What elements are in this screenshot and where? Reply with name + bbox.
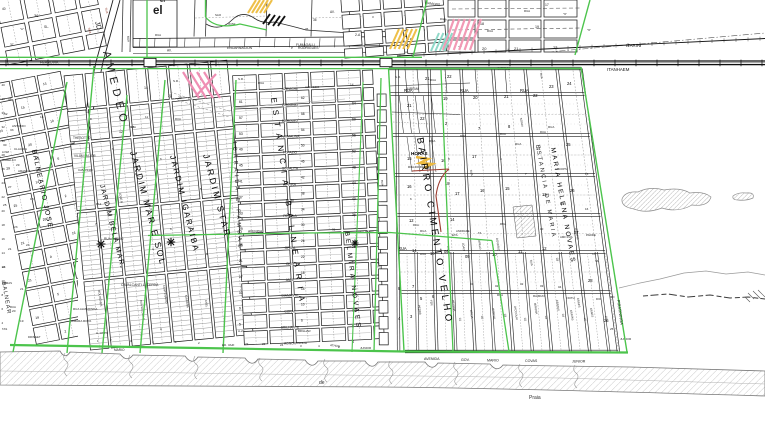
svg-text:CABELLO: CABELLO [2, 158, 17, 162]
svg-text:20: 20 [2, 209, 6, 213]
svg-text:34: 34 [301, 207, 305, 211]
svg-text:20: 20 [178, 96, 182, 100]
svg-text:19: 19 [535, 25, 539, 29]
svg-text:P12: P12 [96, 202, 102, 206]
svg-text:26: 26 [301, 239, 305, 243]
svg-text:04: 04 [558, 285, 562, 289]
svg-text:RUA: RUA [500, 222, 506, 226]
svg-text:ARANGA: ARANGA [18, 169, 31, 173]
svg-text:RUA: RUA [380, 180, 385, 186]
svg-text:RUA: RUA [130, 125, 136, 129]
svg-text:22: 22 [420, 116, 425, 121]
svg-text:AZEVEDO: AZEVEDO [305, 85, 320, 89]
svg-text:RUA: RUA [548, 125, 554, 129]
svg-text:ETA: ETA [452, 233, 458, 237]
svg-text:DO: DO [610, 295, 615, 299]
svg-text:36: 36 [313, 18, 317, 22]
svg-text:ZIRCONIO: ZIRCONIO [282, 103, 299, 107]
svg-text:RUA: RUA [430, 78, 436, 82]
svg-text:TA: TA [478, 231, 482, 235]
svg-text:RUA: RUA [540, 130, 546, 134]
svg-text:24: 24 [26, 243, 30, 247]
svg-text:RUA: RUA [413, 223, 419, 227]
svg-text:COVAS: COVAS [525, 359, 538, 363]
svg-text:RUA: RUA [126, 36, 131, 43]
svg-text:ANDRADE: ANDRADE [456, 229, 470, 233]
svg-text:50: 50 [301, 144, 305, 148]
svg-text:16: 16 [40, 115, 44, 119]
svg-text:2-A: 2-A [355, 33, 361, 37]
svg-text:36: 36 [2, 97, 6, 101]
svg-text:22: 22 [2, 195, 6, 199]
svg-text:RUA: RUA [420, 229, 426, 233]
svg-text:6: 6 [301, 319, 303, 323]
svg-text:40: 40 [2, 7, 6, 11]
svg-text:RUA: RUA [440, 17, 446, 21]
svg-text:SAO: SAO [215, 13, 222, 17]
svg-text:P: P [291, 46, 293, 50]
svg-text:14: 14 [450, 217, 455, 222]
svg-text:AGNOR: AGNOR [296, 341, 308, 345]
svg-text:60: 60 [352, 118, 356, 122]
svg-text:15: 15 [407, 156, 412, 161]
svg-text:el: el [160, 0, 165, 4]
svg-text:49: 49 [239, 148, 243, 152]
svg-text:17: 17 [472, 154, 477, 159]
svg-text:58: 58 [301, 112, 305, 116]
svg-text:09: 09 [465, 254, 470, 259]
svg-text:38: 38 [301, 191, 305, 195]
svg-text:21: 21 [239, 259, 243, 263]
svg-text:16: 16 [585, 207, 589, 211]
svg-text:13: 13 [239, 291, 243, 295]
svg-text:28: 28 [588, 278, 593, 283]
svg-text:AGNOR: AGNOR [284, 341, 297, 345]
svg-text:RUA: RUA [515, 142, 521, 146]
svg-text:A. OTTO: A. OTTO [96, 331, 109, 335]
svg-text:FIOTH: FIOTH [566, 296, 575, 300]
svg-text:23: 23 [245, 342, 249, 346]
svg-text:CAMPINIO: CAMPINIO [78, 168, 94, 172]
svg-text:FUMAGALLI: FUMAGALLI [296, 43, 315, 47]
svg-text:LOWI: LOWI [2, 150, 9, 154]
svg-text:DRINGET: DRINGET [28, 335, 41, 339]
svg-text:15: 15 [505, 186, 510, 191]
svg-text:S.R.: S.R. [238, 77, 244, 81]
svg-text:ITARIRI: ITARIRI [626, 43, 641, 48]
svg-text:21: 21 [504, 94, 509, 99]
svg-text:MARIO: MARIO [114, 348, 125, 352]
svg-text:30: 30 [3, 143, 7, 147]
svg-text:30: 30 [301, 223, 305, 227]
svg-text:24: 24 [567, 81, 572, 86]
svg-text:17: 17 [455, 191, 460, 196]
svg-text:ALMARA ROYA: ALMARA ROYA [70, 319, 91, 323]
svg-text:24: 24 [280, 343, 284, 347]
svg-text:DIO: DIO [596, 297, 602, 301]
svg-text:RUA: RUA [429, 139, 435, 143]
svg-text:SL.: SL. [44, 25, 49, 29]
svg-text:34: 34 [2, 111, 6, 115]
svg-text:11: 11 [518, 249, 523, 254]
svg-text:THESOTTO: THESOTTO [73, 136, 91, 140]
svg-text:RUA: RUA [460, 134, 466, 138]
svg-text:21: 21 [8, 247, 12, 251]
svg-text:el: el [153, 5, 163, 17]
svg-text:21: 21 [425, 76, 430, 81]
svg-text:TER: TER [429, 300, 434, 306]
svg-text:03: 03 [540, 284, 544, 288]
svg-text:ED. VAZI: ED. VAZI [222, 343, 234, 347]
svg-text:MARQUEZ: MARQUEZ [282, 119, 299, 123]
svg-text:23: 23 [14, 225, 18, 229]
svg-text:"9": "9" [587, 28, 591, 32]
svg-text:40: 40 [352, 197, 356, 201]
svg-text:TAS: TAS [2, 327, 7, 331]
svg-text:48: 48 [352, 165, 356, 169]
svg-text:61: 61 [239, 100, 243, 104]
svg-text:15: 15 [585, 172, 589, 176]
svg-text:27: 27 [8, 185, 12, 189]
svg-text:9: 9 [239, 307, 241, 311]
svg-text:18: 18 [30, 197, 34, 201]
svg-text:RUA: RUA [524, 9, 530, 13]
svg-text:57: 57 [239, 116, 243, 120]
svg-text:20: 20 [482, 46, 487, 51]
svg-text:CORAL: CORAL [284, 310, 296, 314]
svg-text:14: 14 [2, 251, 6, 255]
svg-text:12: 12 [2, 265, 6, 269]
svg-text:26: 26 [570, 188, 575, 193]
svg-text:5: 5 [239, 323, 241, 327]
svg-text:44: 44 [352, 181, 356, 185]
svg-text:20: 20 [12, 309, 16, 313]
svg-text:29: 29 [16, 163, 20, 167]
svg-text:19: 19 [443, 96, 448, 101]
svg-text:22: 22 [533, 93, 538, 98]
svg-text:40: 40 [2, 83, 6, 87]
svg-text:22: 22 [447, 74, 452, 79]
svg-text:11: 11 [145, 115, 148, 119]
svg-text:36: 36 [352, 213, 356, 217]
svg-text:21: 21 [20, 287, 24, 291]
svg-text:02: 02 [520, 282, 524, 286]
svg-text:10: 10 [540, 227, 544, 231]
svg-text:14: 14 [412, 248, 417, 253]
svg-text:RUA: RUA [487, 29, 493, 33]
svg-text:"A": "A" [20, 27, 24, 31]
svg-text:25: 25 [566, 142, 571, 147]
svg-text:12: 12 [119, 130, 123, 134]
svg-text:RUA: RUA [258, 81, 264, 85]
svg-text:RUA: RUA [420, 252, 426, 256]
svg-text:37: 37 [10, 43, 14, 47]
svg-text:32: 32 [2, 125, 6, 129]
svg-text:23: 23 [549, 84, 554, 89]
svg-text:Praia: Praia [529, 395, 541, 401]
svg-text:36: 36 [305, 27, 309, 31]
svg-text:20: 20 [473, 95, 478, 100]
svg-text:AV.: AV. [167, 49, 172, 53]
svg-text:36: 36 [34, 13, 39, 18]
svg-text:21: 21 [407, 103, 412, 108]
svg-text:33: 33 [10, 128, 14, 132]
svg-text:AV.: AV. [330, 10, 335, 14]
svg-text:30: 30 [2, 139, 6, 143]
svg-text:14: 14 [350, 83, 354, 87]
svg-text:RUA: RUA [155, 33, 161, 37]
svg-text:25: 25 [3, 203, 7, 207]
svg-text:A-22: A-22 [238, 329, 245, 333]
svg-text:de: de [319, 380, 325, 386]
svg-text:AVENIDA: AVENIDA [424, 357, 440, 361]
svg-text:12: 12 [542, 246, 547, 251]
svg-text:JADE: JADE [286, 278, 295, 282]
svg-text:42: 42 [301, 176, 305, 180]
svg-text:BRILHAR: BRILHAR [298, 329, 311, 333]
svg-text:RUA: RUA [398, 246, 407, 251]
svg-text:ENCARNACION: ENCARNACION [227, 46, 253, 50]
svg-text:ANTONIO: ANTONIO [12, 124, 26, 128]
svg-text:22: 22 [553, 45, 558, 50]
svg-text:TA: TA [592, 252, 596, 256]
svg-text:S.R.: S.R. [173, 79, 179, 83]
svg-text:64: 64 [352, 102, 356, 106]
svg-text:01: 01 [470, 282, 474, 286]
svg-text:JUNIOR: JUNIOR [620, 337, 632, 341]
svg-text:54: 54 [301, 128, 305, 132]
svg-text:RUA: RUA [460, 88, 469, 93]
svg-text:31: 31 [332, 228, 336, 232]
svg-text:16: 16 [407, 184, 412, 189]
svg-text:AZEVICHE: AZEVICHE [282, 87, 299, 91]
svg-text:"9": "9" [563, 12, 567, 16]
svg-text:MARIO: MARIO [487, 359, 499, 363]
svg-text:RUA: RUA [404, 88, 413, 93]
svg-text:GOV.: GOV. [461, 358, 470, 362]
svg-text:25: 25 [610, 327, 614, 331]
svg-text:62: 62 [301, 96, 305, 100]
svg-text:RUA: RUA [520, 88, 529, 93]
svg-text:19: 19 [20, 319, 24, 323]
svg-text:45: 45 [239, 164, 243, 168]
svg-text:14: 14 [144, 86, 148, 90]
svg-text:52: 52 [352, 149, 356, 153]
svg-text:53: 53 [239, 132, 243, 136]
svg-text:22: 22 [262, 342, 266, 346]
svg-text:16: 16 [480, 188, 485, 193]
svg-text:24: 24 [2, 181, 6, 185]
svg-text:PADRE: PADRE [586, 233, 596, 237]
svg-text:17: 17 [545, 3, 549, 7]
svg-text:ITANHAEM: ITANHAEM [607, 67, 630, 72]
svg-text:JUNIOR: JUNIOR [360, 346, 372, 350]
svg-text:A: A [160, 327, 162, 331]
svg-text:RAIMUN: RAIMUN [533, 294, 544, 298]
svg-text:17: 17 [239, 275, 243, 279]
svg-text:FERROVIA: FERROVIA [40, 61, 59, 65]
svg-text:34: 34 [8, 97, 12, 101]
svg-text:26: 26 [2, 167, 6, 171]
svg-text:18: 18 [2, 223, 6, 227]
svg-text:CLAUDIA: CLAUDIA [14, 147, 27, 151]
svg-text:RUA: RUA [175, 117, 181, 121]
svg-text:56: 56 [352, 134, 356, 138]
svg-text:S.R.: S.R. [395, 75, 401, 79]
svg-text:TA: TA [595, 259, 599, 263]
svg-text:RUA: RUA [500, 132, 506, 136]
svg-text:RUA ALMERINDA: RUA ALMERINDA [73, 307, 97, 311]
svg-text:JUNIOR: JUNIOR [572, 360, 586, 364]
svg-text:16: 16 [2, 237, 6, 241]
svg-text:CAVALCANTI L. CERDA: CAVALCANTI L. CERDA [121, 283, 159, 287]
svg-text:46: 46 [301, 160, 305, 164]
